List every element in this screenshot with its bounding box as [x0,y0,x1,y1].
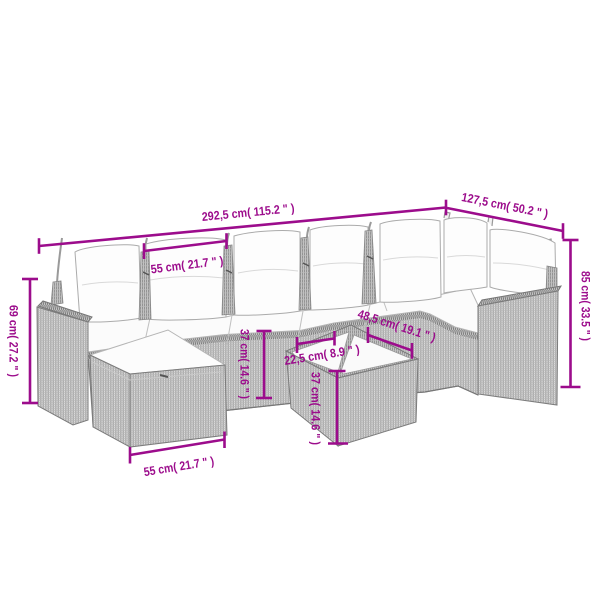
svg-text:37 cm( 14.6 " ): 37 cm( 14.6 " ) [309,372,323,445]
svg-text:85 cm( 33.5 " ): 85 cm( 33.5 " ) [579,271,593,341]
svg-text:69 cm( 27.2 " ): 69 cm( 27.2 " ) [7,305,21,377]
svg-text:37 cm( 14.6 " ): 37 cm( 14.6 " ) [238,329,252,399]
